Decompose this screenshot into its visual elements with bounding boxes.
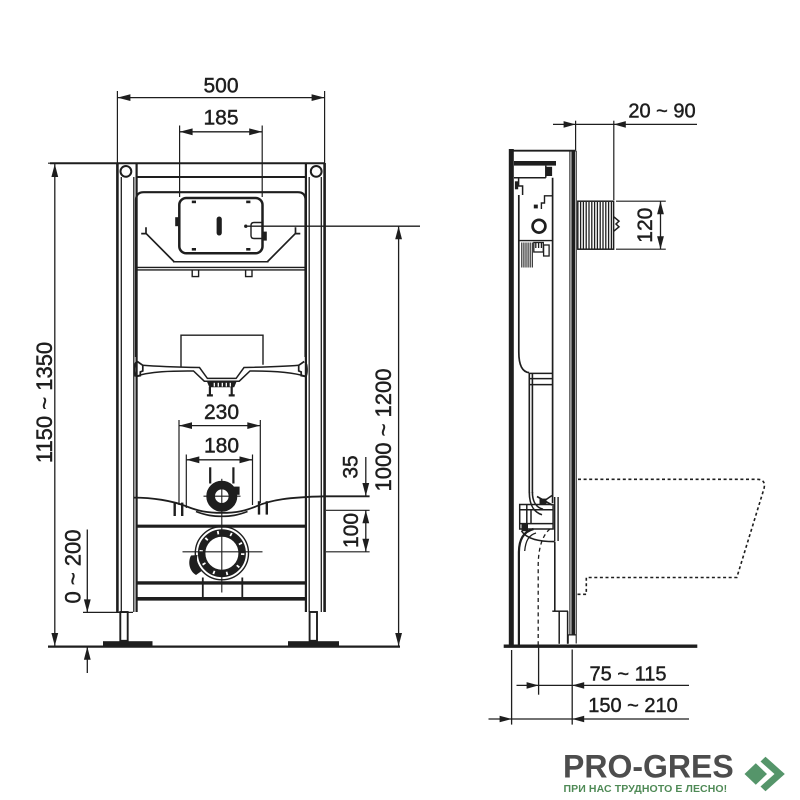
svg-text:180: 180 — [204, 435, 239, 458]
svg-text:1000 ~ 1200: 1000 ~ 1200 — [371, 369, 396, 492]
svg-text:150 ~ 210: 150 ~ 210 — [588, 695, 678, 717]
svg-text:20 ~ 90: 20 ~ 90 — [628, 101, 695, 123]
svg-text:100: 100 — [340, 513, 363, 548]
svg-text:500: 500 — [203, 75, 238, 98]
svg-text:230: 230 — [204, 401, 239, 424]
svg-text:0 ~ 200: 0 ~ 200 — [61, 529, 86, 603]
svg-text:120: 120 — [634, 208, 657, 243]
svg-text:PRO-GRES: PRO-GRES — [563, 749, 734, 785]
svg-text:75 ~ 115: 75 ~ 115 — [590, 664, 667, 686]
svg-text:185: 185 — [203, 107, 238, 130]
svg-text:35: 35 — [340, 455, 363, 478]
svg-text:ПРИ НАС ТРУДНОТО Е ЛЕСНО!: ПРИ НАС ТРУДНОТО Е ЛЕСНО! — [564, 783, 728, 795]
svg-text:1150 ~ 1350: 1150 ~ 1350 — [32, 342, 57, 463]
